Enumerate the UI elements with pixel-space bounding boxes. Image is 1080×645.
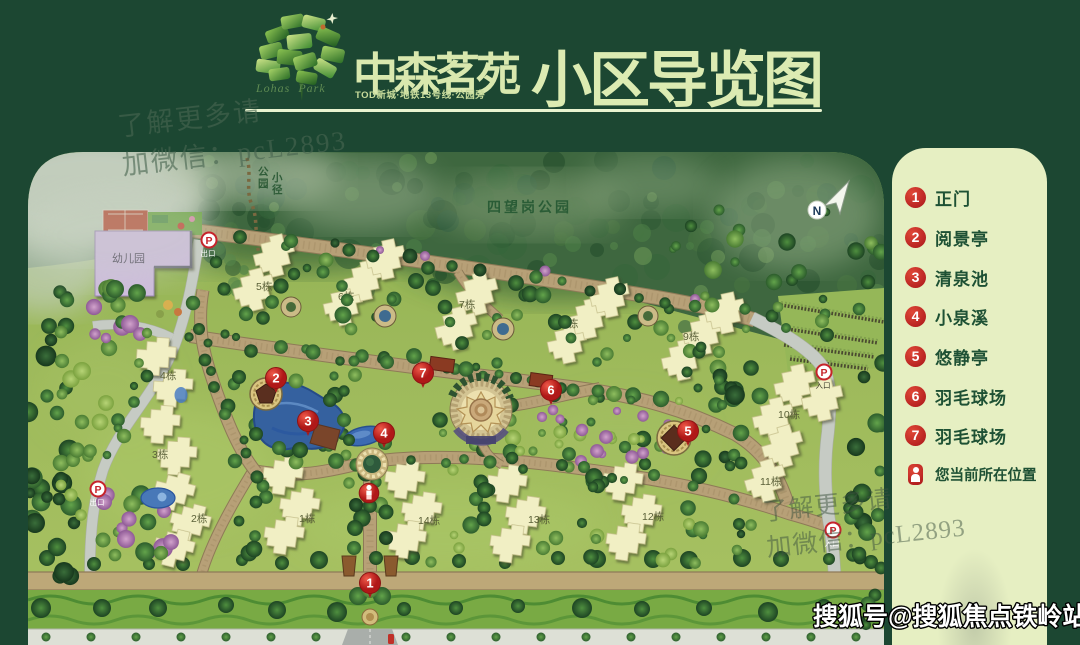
svg-text:P: P [820, 367, 827, 379]
svg-text:7栋: 7栋 [459, 298, 476, 311]
svg-text:1栋: 1栋 [299, 512, 316, 525]
svg-text:5: 5 [684, 424, 691, 439]
svg-text:搜狐号@搜狐焦点铁岭站: 搜狐号@搜狐焦点铁岭站 [813, 602, 1080, 631]
svg-text:入口: 入口 [816, 381, 831, 390]
svg-text:出口: 出口 [201, 248, 216, 258]
svg-text:2: 2 [272, 371, 279, 386]
svg-text:出口: 出口 [90, 497, 105, 507]
svg-text:小径: 小径 [271, 171, 283, 196]
svg-text:四望岗公园: 四望岗公园 [487, 199, 572, 215]
svg-text:14栋: 14栋 [418, 514, 441, 527]
svg-text:N: N [813, 204, 822, 218]
svg-text:12栋: 12栋 [642, 510, 665, 523]
svg-text:7: 7 [419, 366, 426, 381]
svg-text:3: 3 [304, 414, 311, 429]
svg-text:1: 1 [366, 576, 373, 591]
svg-text:3栋: 3栋 [152, 448, 169, 461]
svg-text:P: P [94, 484, 101, 496]
svg-text:5栋: 5栋 [256, 280, 273, 293]
svg-text:4栋: 4栋 [160, 369, 177, 382]
svg-text:2栋: 2栋 [191, 512, 208, 525]
svg-text:4: 4 [380, 426, 388, 441]
svg-text:公园: 公园 [258, 166, 269, 190]
svg-text:9栋: 9栋 [683, 330, 700, 343]
svg-text:P: P [205, 235, 212, 247]
svg-text:6: 6 [547, 383, 554, 398]
svg-text:11栋: 11栋 [760, 475, 782, 488]
svg-text:13栋: 13栋 [528, 513, 551, 526]
svg-text:10栋: 10栋 [778, 408, 801, 421]
